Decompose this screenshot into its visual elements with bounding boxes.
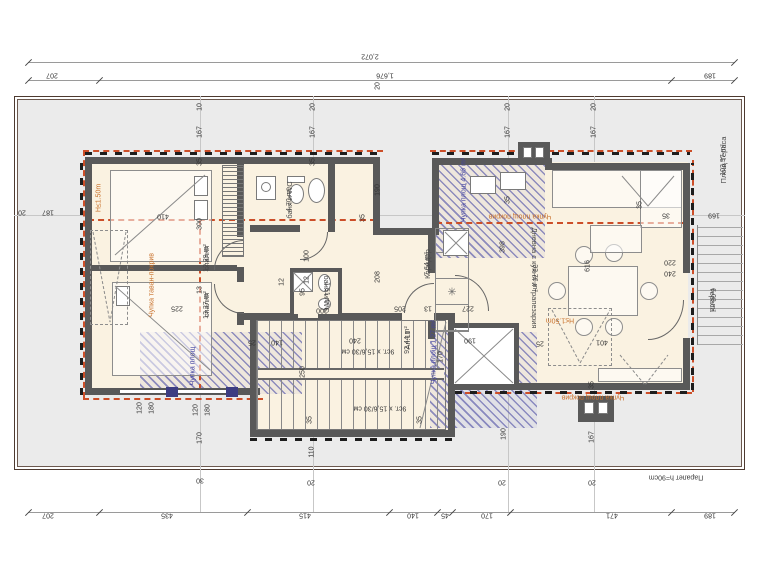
wall-pier	[226, 387, 238, 397]
insulation-line	[85, 152, 380, 155]
chimney-flue	[523, 147, 532, 158]
window	[178, 389, 226, 394]
dim-bottom-189: 189	[704, 512, 716, 519]
dim-bottom-170: 170	[481, 512, 493, 519]
elevator-shaft	[449, 323, 519, 389]
dim-label: 120	[137, 402, 144, 414]
roof-break-line	[83, 398, 263, 400]
dim-label: 35	[310, 158, 317, 166]
dim-label: 30	[196, 477, 204, 484]
door-gap	[298, 314, 318, 318]
coffee-table	[590, 225, 642, 253]
dim-label: 170	[197, 432, 204, 444]
roof-break-label: Чупка площ покрив	[562, 394, 625, 401]
tv-bench	[598, 368, 682, 382]
dim-label: 110	[309, 446, 316, 457]
dim-top-207: 207	[46, 72, 58, 79]
dim-label: 35	[589, 381, 596, 389]
dim-label: 35	[637, 201, 644, 209]
dim-label: 180	[205, 404, 212, 416]
dim-bottom-435: 435	[161, 512, 173, 519]
dim-label: 169	[708, 212, 720, 219]
dim-label: 225	[171, 305, 183, 312]
wall	[250, 430, 455, 437]
dim-label: 35	[197, 158, 204, 166]
wall-pier	[166, 387, 178, 397]
dim-label: 35	[417, 416, 424, 424]
dim-label: 10	[197, 103, 204, 111]
sink	[308, 178, 325, 203]
dim-label: 220	[664, 259, 676, 266]
stair-flight-label: 9ст. x 15,6/30 см	[354, 405, 407, 412]
dim-label: 167	[197, 126, 204, 138]
height-limit-label: H≤1.50m	[546, 317, 574, 324]
dim-label: 25	[248, 339, 256, 346]
dim-label: 300	[197, 218, 204, 230]
dim-label: 167	[589, 431, 596, 443]
wall	[432, 158, 439, 228]
wall	[328, 157, 335, 232]
wall	[683, 163, 690, 273]
dim-label: 616	[585, 260, 592, 272]
insulation-line	[250, 438, 455, 441]
dim-label: 200	[316, 307, 328, 314]
floor-plan: 2,072 207 1,676 189 207 435 415 140 45 1…	[0, 0, 758, 564]
dim-tick	[731, 59, 738, 66]
dim-label: 35	[360, 214, 367, 222]
terrace-decking	[697, 225, 743, 345]
ceiling-break-label: Чупка таван-покрив	[149, 253, 156, 317]
dim-label: 205	[394, 305, 406, 312]
dim-top-1676: 1,676	[376, 72, 394, 79]
insulation-line	[432, 152, 690, 155]
dim-bottom-45: 45	[441, 512, 449, 519]
dim-label: 100	[304, 250, 311, 262]
sofa-chaise	[640, 170, 682, 228]
dim-label: 398	[500, 241, 507, 253]
dim-label: 167	[505, 126, 512, 138]
wall	[373, 157, 380, 235]
dim-label: 20	[498, 479, 506, 486]
stair-rail	[258, 368, 444, 380]
chair	[640, 282, 658, 300]
dim-label: 20	[310, 103, 317, 111]
dim-label: 190	[464, 337, 476, 344]
height-limit-label: H≤1.50m	[96, 184, 103, 212]
roof-break-label: Чупка площ покрив	[489, 213, 552, 220]
dim-label: 20	[375, 82, 382, 90]
kitchen-sink	[500, 172, 526, 190]
parapet-label: Парапет h=90cm	[649, 474, 703, 481]
dim-line-top-total	[28, 62, 735, 63]
dim-bottom-415: 415	[299, 512, 311, 519]
dim-label: 20	[18, 209, 26, 216]
dim-label: 20	[591, 103, 598, 111]
door-gap	[300, 225, 328, 232]
dim-label: 35	[662, 212, 670, 219]
pillow	[194, 176, 208, 196]
wall	[85, 157, 380, 164]
closet	[222, 165, 244, 257]
wall	[545, 163, 690, 170]
dim-label: 120	[193, 404, 200, 416]
chimney-flue	[598, 402, 608, 414]
dim-line-bottom	[28, 512, 735, 513]
chimney-flue	[535, 147, 544, 158]
window	[120, 389, 168, 394]
dim-label: 240	[349, 337, 361, 344]
dim-label: 240	[664, 270, 676, 277]
dim-label: 208	[375, 271, 382, 283]
hatch-area-label: Чупка площ	[190, 347, 197, 386]
dim-bottom-471: 471	[606, 512, 618, 519]
dim-line-top-segments	[28, 80, 735, 81]
dim-label: 35	[505, 196, 512, 204]
dim-label: 95	[300, 288, 307, 296]
fridge	[443, 230, 469, 256]
dim-label: 190	[501, 428, 508, 440]
dim-label: 250	[300, 366, 307, 378]
dim-label: 410	[157, 213, 169, 220]
stair-flight-label: 9ст. x 15,6/30 см	[342, 348, 395, 355]
dim-label: 180	[149, 402, 156, 414]
dim-label: 12	[304, 276, 311, 284]
dim-top-total: 2,072	[361, 53, 379, 60]
dim-bottom-140: 140	[407, 512, 419, 519]
dim-label: 25	[536, 340, 544, 347]
dim-tick	[731, 77, 738, 84]
dim-label: 167	[310, 126, 317, 138]
dim-label: 13	[197, 286, 204, 294]
wardrobe-low	[90, 230, 128, 325]
dim-label: 20	[588, 479, 596, 486]
door-gap	[402, 313, 434, 320]
dim-label: 401	[596, 339, 608, 346]
chimney-flue	[584, 402, 594, 414]
dim-label: 167	[591, 126, 598, 138]
insulation-line	[691, 163, 694, 390]
dim-tick	[731, 509, 738, 516]
insulation-line	[80, 157, 83, 395]
dim-label: 13	[424, 305, 432, 312]
dim-label: 227	[462, 305, 474, 312]
chair	[548, 282, 566, 300]
dim-label: 12	[279, 278, 286, 286]
dim-label: 20	[307, 479, 315, 486]
hatch-area-label: Чупка площ 1.27 m²	[431, 320, 438, 384]
dim-label: 35	[307, 416, 314, 424]
dim-label: 20	[505, 103, 512, 111]
stove-burner-icon: ✳	[447, 286, 456, 299]
dim-label: 190	[375, 184, 382, 196]
dim-label: 187	[42, 209, 54, 216]
dim-label: 170	[438, 351, 445, 363]
hatch-area-label: Чупка площ 4.66 m²	[461, 158, 468, 222]
dim-top-189: 189	[704, 72, 716, 79]
kitchen-sink	[470, 176, 496, 194]
washing-machine-drum	[261, 182, 271, 192]
dim-bottom-207: 207	[42, 512, 54, 519]
dim-label: 140	[271, 339, 283, 346]
